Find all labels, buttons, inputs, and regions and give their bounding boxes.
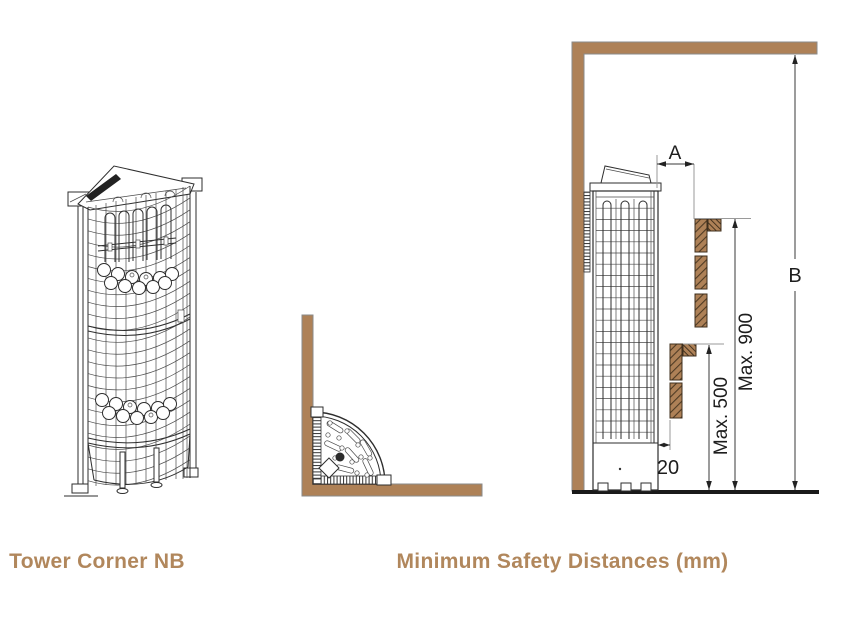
stones-upper bbox=[98, 264, 179, 295]
sensor-dot bbox=[336, 453, 345, 462]
dimension-gap-20: 20 bbox=[657, 420, 679, 479]
side-view-clearance-diagram: A Max. 900 Max. 500 B bbox=[565, 35, 860, 505]
wood-bars-900 bbox=[695, 219, 721, 327]
middle-shelf bbox=[88, 310, 190, 335]
dim-a-label: A bbox=[669, 143, 682, 164]
diagram-title-caption: Minimum Safety Distances (mm) bbox=[380, 550, 745, 574]
max-900-label: Max. 900 bbox=[736, 313, 757, 391]
safety-distances-figure: A Max. 900 Max. 500 B bbox=[0, 0, 860, 619]
max-500-label: Max. 500 bbox=[711, 377, 732, 455]
dimension-max500: Max. 500 bbox=[683, 344, 732, 490]
wood-bars-500 bbox=[670, 344, 696, 418]
heater-top-view bbox=[311, 407, 391, 485]
body-grid bbox=[88, 186, 190, 487]
tower-corner-isometric-drawing bbox=[52, 150, 262, 510]
dimension-b: B bbox=[788, 55, 801, 490]
gap-20-label: 20 bbox=[657, 457, 679, 479]
dimension-a: A bbox=[657, 143, 694, 219]
wall-bracket-left bbox=[313, 417, 321, 479]
control-cap bbox=[601, 166, 651, 183]
dim-b-label: B bbox=[788, 265, 801, 287]
corner-top-view-drawing bbox=[295, 305, 490, 500]
heater-side-view bbox=[584, 166, 661, 491]
wall-mount-bracket bbox=[584, 192, 590, 272]
product-name-caption: Tower Corner NB bbox=[6, 550, 188, 574]
